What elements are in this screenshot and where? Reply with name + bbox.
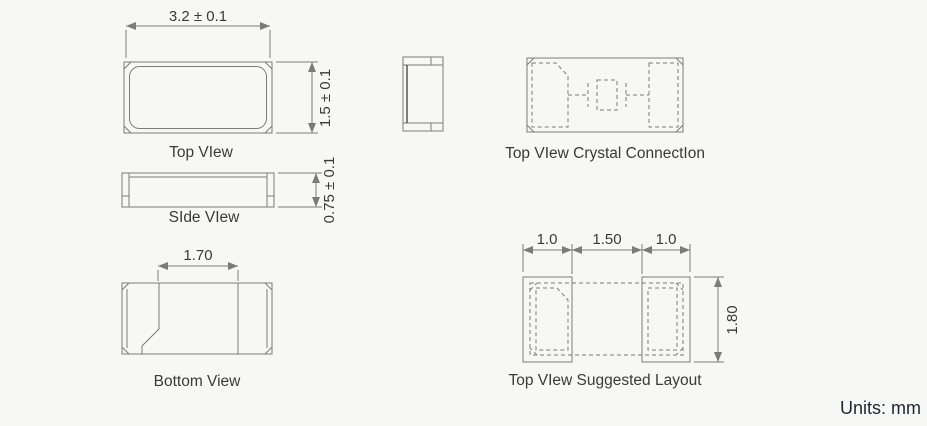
side-view-body-outline bbox=[122, 173, 274, 207]
corner-notch bbox=[265, 347, 272, 354]
top-view-body-outline bbox=[124, 62, 272, 133]
units-note: Units: mm bbox=[840, 398, 921, 418]
layout-gap-dim-label: 1.50 bbox=[592, 231, 621, 248]
bottom-view-gap-dim-label: 1.70 bbox=[183, 247, 212, 264]
layout-left-pad-dim-label: 1.0 bbox=[537, 231, 558, 248]
side-view: 0.75 ± 0.1 SIde VIew bbox=[122, 157, 338, 226]
corner-notch bbox=[265, 126, 272, 133]
corner-notch bbox=[124, 62, 131, 69]
drawing-canvas: 3.2 ± 0.1 1.5 ± 0.1 Top VIew 0.75 ± 0.1 … bbox=[0, 0, 927, 426]
corner-notch bbox=[676, 58, 683, 65]
corner-notch bbox=[265, 283, 272, 290]
layout-height-dim-label: 1.80 bbox=[724, 305, 741, 334]
layout-body-outline-hidden bbox=[530, 283, 683, 355]
end-view-body-outline bbox=[403, 57, 443, 131]
suggested-layout-caption: Top VIew Suggested Layout bbox=[508, 372, 702, 389]
connection-body-outline bbox=[527, 58, 683, 132]
crystal-connection-view: Top VIew Crystal ConnectIon bbox=[505, 58, 705, 162]
corner-notch bbox=[122, 283, 129, 290]
corner-notch bbox=[527, 125, 534, 132]
top-view-caption: Top VIew bbox=[169, 144, 234, 161]
end-view bbox=[403, 57, 443, 131]
corner-notch bbox=[122, 347, 129, 354]
corner-notch bbox=[676, 125, 683, 132]
top-view-lid-outline bbox=[130, 67, 267, 129]
layout-left-pad-hidden bbox=[536, 288, 568, 350]
corner-notch bbox=[676, 348, 683, 355]
suggested-layout-view: 1.0 1.50 1.0 1.80 Top VIew Suggested Lay… bbox=[508, 231, 741, 389]
side-view-thickness-dim-label: 0.75 ± 0.1 bbox=[321, 157, 338, 224]
connection-left-pad-hidden bbox=[532, 63, 568, 127]
crystal-element-symbol bbox=[597, 80, 617, 110]
corner-notch bbox=[527, 58, 534, 65]
bottom-view-left-pad-edge bbox=[142, 283, 159, 354]
corner-notch bbox=[124, 126, 131, 133]
connection-right-pad-hidden bbox=[649, 63, 678, 127]
crystal-connection-caption: Top VIew Crystal ConnectIon bbox=[505, 145, 705, 162]
layout-right-pad-hidden bbox=[648, 288, 677, 350]
bottom-view-caption: Bottom View bbox=[154, 373, 242, 390]
side-view-caption: SIde VIew bbox=[169, 209, 240, 226]
top-view: 3.2 ± 0.1 1.5 ± 0.1 Top VIew bbox=[124, 8, 334, 161]
corner-notch bbox=[530, 283, 537, 290]
package-drawing: 3.2 ± 0.1 1.5 ± 0.1 Top VIew 0.75 ± 0.1 … bbox=[0, 0, 927, 426]
corner-notch bbox=[265, 62, 272, 69]
top-view-height-dim-label: 1.5 ± 0.1 bbox=[317, 69, 334, 127]
layout-right-pad-dim-label: 1.0 bbox=[656, 231, 677, 248]
top-view-width-dim-label: 3.2 ± 0.1 bbox=[169, 8, 227, 25]
bottom-view: 1.70 Bottom View bbox=[122, 247, 272, 390]
